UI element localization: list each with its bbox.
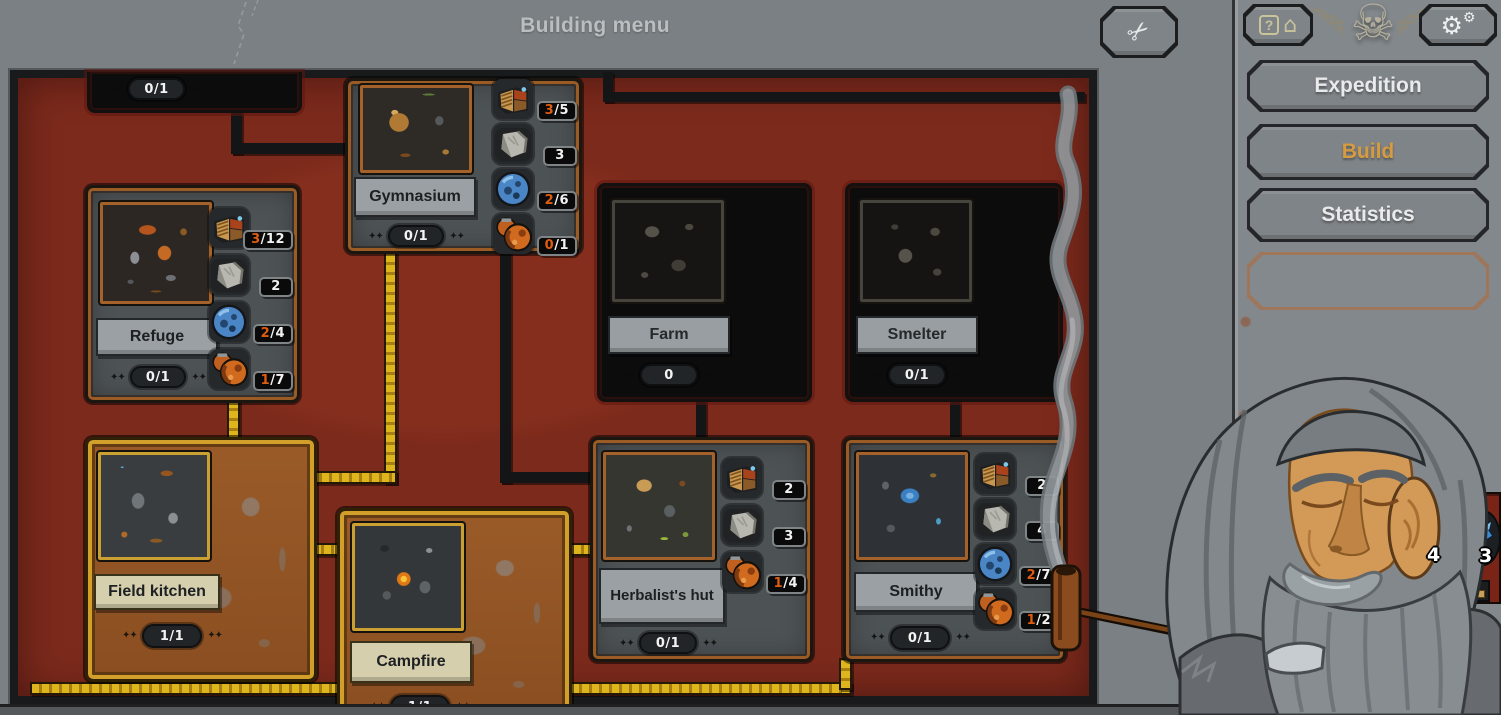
- cost-total: 2: [1037, 478, 1047, 493]
- cost-list: 2 3 1/4: [722, 458, 806, 599]
- cost-ore: 2/6: [493, 169, 577, 214]
- skull-emblem-icon: ☠: [1338, 0, 1408, 52]
- page-title: Building menu: [0, 14, 1190, 38]
- built-count-badge: 0/1: [639, 632, 697, 654]
- cost-list: 3/12 2 2/4 1/7: [209, 208, 293, 396]
- building-name: Farm: [608, 316, 730, 354]
- statistics-label: Statistics: [1250, 191, 1486, 239]
- link-refuge-fieldkitchen: [227, 400, 240, 440]
- smelter-image: [860, 200, 972, 302]
- ore-icon: [209, 302, 249, 342]
- question-icon: ?: [1259, 15, 1280, 35]
- pot-icon: [493, 214, 533, 254]
- link-top-edge-h: [603, 92, 1085, 102]
- building-name: Smithy: [854, 572, 978, 612]
- cost-wood: 2: [722, 458, 806, 505]
- cost-chip: 0/1: [537, 236, 577, 256]
- building-card-top-partial[interactable]: 0/1: [87, 72, 302, 113]
- building-card-campfire[interactable]: Campfire 1/1: [337, 508, 572, 715]
- scissors-icon: ✂: [1121, 13, 1157, 50]
- link-smelter-smithy: [950, 398, 960, 440]
- empty-label: [1250, 255, 1486, 307]
- pot-icon: [722, 552, 762, 592]
- building-name: Refuge: [96, 318, 218, 356]
- cost-have: 1: [774, 576, 784, 591]
- cost-total: 2: [784, 482, 794, 497]
- cost-chip: 3/12: [243, 230, 293, 250]
- cost-chip: 2: [772, 480, 806, 500]
- building-name: Gymnasium: [354, 177, 476, 217]
- stone-icon: [493, 124, 533, 164]
- gear-small-icon: ⚙: [1463, 10, 1476, 26]
- built-count-badge: 0/1: [888, 364, 946, 386]
- cost-ore: 2/4: [209, 302, 293, 349]
- sidebar-button-empty: [1247, 252, 1489, 310]
- cost-chip: 3: [772, 527, 806, 547]
- pot-icon: [975, 589, 1015, 629]
- stone-icon: [209, 255, 249, 295]
- farm-image: [612, 200, 724, 302]
- sidebar-button-statistics[interactable]: Statistics: [1247, 188, 1489, 242]
- cost-total: /2: [1036, 613, 1051, 628]
- cost-have: 2: [545, 193, 555, 208]
- cost-total: 3: [555, 148, 565, 163]
- cost-total: 4: [1037, 523, 1047, 538]
- cost-pot: 1/4: [722, 552, 806, 599]
- built-count-badge: 0/1: [130, 366, 186, 388]
- settings-button[interactable]: ⚙ ⚙: [1419, 4, 1497, 46]
- cost-have: 3: [545, 103, 555, 118]
- cost-pot: 0/1: [493, 214, 577, 259]
- herbalist-hut-image: [603, 452, 715, 560]
- cost-list: 2 4 2/7 1/2: [975, 454, 1059, 634]
- cost-chip: 2/4: [253, 324, 293, 344]
- building-menu-screen: Building menu 0/1 Gymnasium 0/1 3/5: [0, 0, 1501, 715]
- cost-wood: 3/12: [209, 208, 293, 255]
- sidebar-button-expedition[interactable]: Expedition: [1247, 60, 1489, 112]
- cost-have: 2: [1027, 568, 1037, 583]
- cost-chip: 1/4: [766, 574, 806, 594]
- cost-have: 2: [261, 326, 271, 341]
- built-count-badge: 0/1: [388, 225, 444, 247]
- cost-stone: 3: [722, 505, 806, 552]
- building-card-herbalist-hut[interactable]: Herbalist's hut 0/1 2 3 1/4: [590, 437, 813, 662]
- building-card-smelter[interactable]: Smelter 0/1: [845, 183, 1063, 402]
- bottom-edge-strip: [0, 704, 1501, 715]
- house-icon: ⌂: [1283, 13, 1297, 38]
- cost-total: 2: [271, 279, 281, 294]
- wood-icon: [722, 458, 762, 498]
- sidebar-button-build[interactable]: Build: [1247, 124, 1489, 180]
- build-label: Build: [1250, 127, 1486, 177]
- built-count-badge: 0/1: [890, 626, 950, 650]
- cost-total: /12: [261, 232, 285, 247]
- campfire-image: [352, 523, 464, 631]
- cost-have: 0: [545, 238, 555, 253]
- cost-wood: 2: [975, 454, 1059, 499]
- tan-item-icon: [1443, 590, 1485, 598]
- cost-chip: 2/7: [1019, 566, 1059, 586]
- cost-have: 3: [251, 232, 261, 247]
- cost-total: /7: [270, 373, 285, 388]
- link-farm-herbalist: [696, 398, 706, 440]
- wood-icon: [975, 454, 1015, 494]
- wood-icon: [493, 79, 533, 119]
- close-menu-button[interactable]: ✂: [1100, 6, 1178, 58]
- smithy-image: [856, 452, 968, 560]
- ore-icon: [975, 544, 1015, 584]
- cost-stone: 2: [209, 255, 293, 302]
- ore-icon: [493, 169, 533, 209]
- cost-chip: 2: [259, 277, 293, 297]
- cost-chip: 1/7: [253, 371, 293, 391]
- cost-ore: 2/7: [975, 544, 1059, 589]
- built-count-badge: 1/1: [142, 624, 202, 648]
- link-gymnasium-fieldkitchen-v: [384, 252, 397, 484]
- built-count-badge: 0: [640, 364, 698, 386]
- building-card-field-kitchen[interactable]: Field kitchen 1/1: [85, 437, 317, 682]
- cost-chip: 2/6: [537, 191, 577, 211]
- cost-total: /4: [783, 576, 798, 591]
- cost-total: /1: [554, 238, 569, 253]
- help-button[interactable]: ? ⌂: [1243, 4, 1313, 46]
- cost-total: /4: [270, 326, 285, 341]
- slot-count-2: 3: [1479, 545, 1492, 567]
- cost-chip: 1/2: [1019, 611, 1059, 631]
- cost-stone: 4: [975, 499, 1059, 544]
- link-gymnasium-fieldkitchen-h: [310, 471, 397, 484]
- building-name: Campfire: [350, 641, 472, 683]
- building-card-refuge[interactable]: Refuge 0/1 3/12 2 2/4 1/7: [85, 185, 300, 403]
- link-topcard-gymnasium-h: [231, 143, 349, 154]
- cost-wood: 3/5: [493, 79, 577, 124]
- cost-chip: 3: [543, 146, 577, 166]
- cost-pot: 1/7: [209, 349, 293, 396]
- building-card-gymnasium[interactable]: Gymnasium 0/1 3/5 3 2/6 0/1: [345, 78, 582, 254]
- stone-icon: [722, 505, 762, 545]
- building-name: Smelter: [856, 316, 978, 354]
- cost-pot: 1/2: [975, 589, 1059, 634]
- pot-icon: [209, 349, 249, 389]
- cost-list: 3/5 3 2/6 0/1: [493, 79, 577, 259]
- cost-have: 1: [1027, 613, 1037, 628]
- gear-icon: ⚙: [1441, 11, 1463, 40]
- cost-total: /6: [554, 193, 569, 208]
- building-name: Herbalist's hut: [599, 568, 725, 624]
- building-card-smithy[interactable]: Smithy 0/1 2 4 2/7 1/2: [843, 437, 1066, 662]
- field-kitchen-image: [98, 452, 210, 560]
- link-gymnasium-herbalist-h: [500, 472, 594, 483]
- refuge-image: [100, 202, 212, 304]
- cost-total: 3: [784, 529, 794, 544]
- built-count-badge: 0/1: [128, 78, 185, 100]
- expedition-label: Expedition: [1250, 63, 1486, 109]
- building-card-farm[interactable]: Farm 0: [597, 183, 812, 402]
- cost-total: /7: [1036, 568, 1051, 583]
- cost-chip: 2: [1025, 476, 1059, 496]
- link-campfire-smithy-v: [839, 658, 852, 690]
- gymnasium-image: [360, 85, 472, 173]
- cost-have: 1: [261, 373, 271, 388]
- building-name: Field kitchen: [94, 574, 220, 610]
- cost-total: /5: [554, 103, 569, 118]
- cost-chip: 4: [1025, 521, 1059, 541]
- slot-count-1: 4: [1427, 544, 1440, 566]
- cost-stone: 3: [493, 124, 577, 169]
- cost-chip: 3/5: [537, 101, 577, 121]
- hud-slot-3[interactable]: [1438, 580, 1490, 602]
- stone-icon: [975, 499, 1015, 539]
- link-gymnasium-herbalist-v: [500, 252, 511, 483]
